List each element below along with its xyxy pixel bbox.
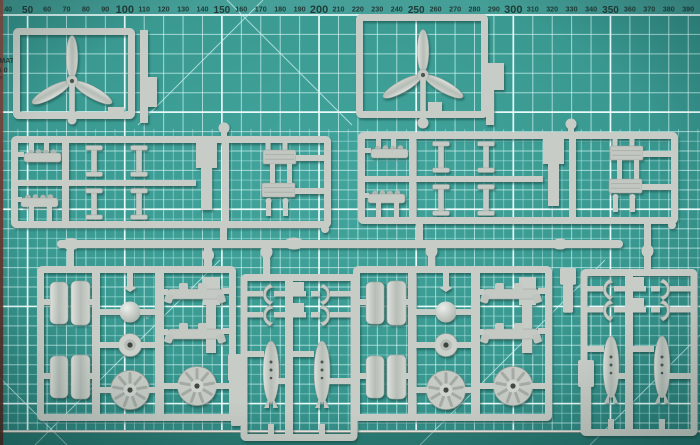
photo-cutting-mat-with-model-sprues: 45° 405060708090100110120130140150160170…	[0, 0, 700, 445]
photo-vignette	[0, 0, 700, 445]
mat-photo: 45° 405060708090100110120130140150160170…	[0, 0, 700, 445]
